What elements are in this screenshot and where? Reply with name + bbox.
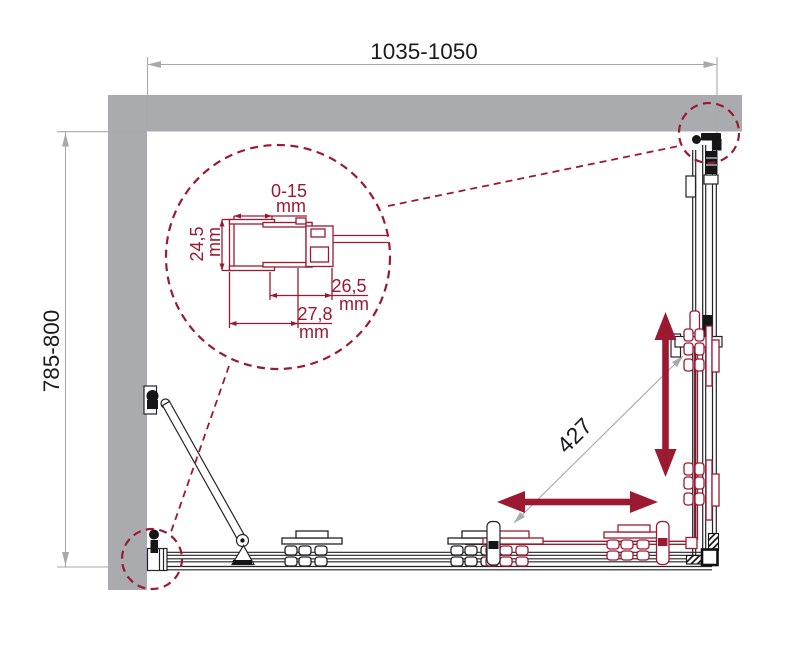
profile-outer-width-unit: mm	[299, 322, 329, 342]
detail-callouts	[122, 103, 739, 589]
profile-inner-width-unit: mm	[339, 294, 369, 314]
roller-carriage-icon	[684, 326, 719, 386]
right-door-lower-carriage	[684, 460, 719, 520]
diagonal-dimension-label: 427	[552, 413, 598, 459]
slide-arrow-vertical-icon	[655, 312, 677, 477]
bottom-door-wall-profile	[148, 530, 168, 571]
profile-depth-dimension: 24,5 mm	[187, 220, 229, 271]
profile-outer-width-dimension: 27,8 mm	[230, 268, 333, 342]
door-handle-black	[487, 522, 500, 566]
diagonal-dimension: 427	[514, 356, 683, 523]
walls	[108, 95, 742, 590]
right-door-assembly	[671, 133, 722, 565]
wall-profile-section-detail: 0-15 mm 24,5 mm 26,5 mm	[187, 181, 388, 342]
corner-hatch-vertical	[709, 534, 719, 551]
profile-adjustment-dimension: 0-15 mm	[234, 181, 307, 220]
depth-dimension-label: 785-800	[39, 310, 64, 393]
door-corner-guide	[686, 538, 697, 549]
slide-arrow-horizontal-icon	[497, 491, 658, 513]
left-wall	[108, 95, 147, 590]
profile-adjustment-unit: mm	[276, 196, 306, 216]
technical-drawing-page: 1035-1050 785-800 427	[0, 0, 800, 662]
corner-post-section	[702, 550, 718, 566]
slide-direction-arrows	[497, 312, 677, 513]
profile-inner-width-value: 26,5	[331, 276, 366, 296]
open-door-arm	[144, 386, 254, 565]
door-handle-maroon	[657, 522, 670, 565]
profile-outer-width-value: 27,8	[297, 304, 332, 324]
right-door-roller-carriage	[671, 311, 722, 386]
shower-enclosure-plan-drawing: 1035-1050 785-800 427	[0, 0, 800, 662]
top-wall	[108, 95, 742, 132]
bottom-door-carriage-fixed	[282, 531, 342, 566]
detail-leader-top	[388, 146, 679, 206]
profile-depth-unit: mm	[204, 227, 224, 257]
width-dimension-label: 1035-1050	[370, 39, 478, 64]
